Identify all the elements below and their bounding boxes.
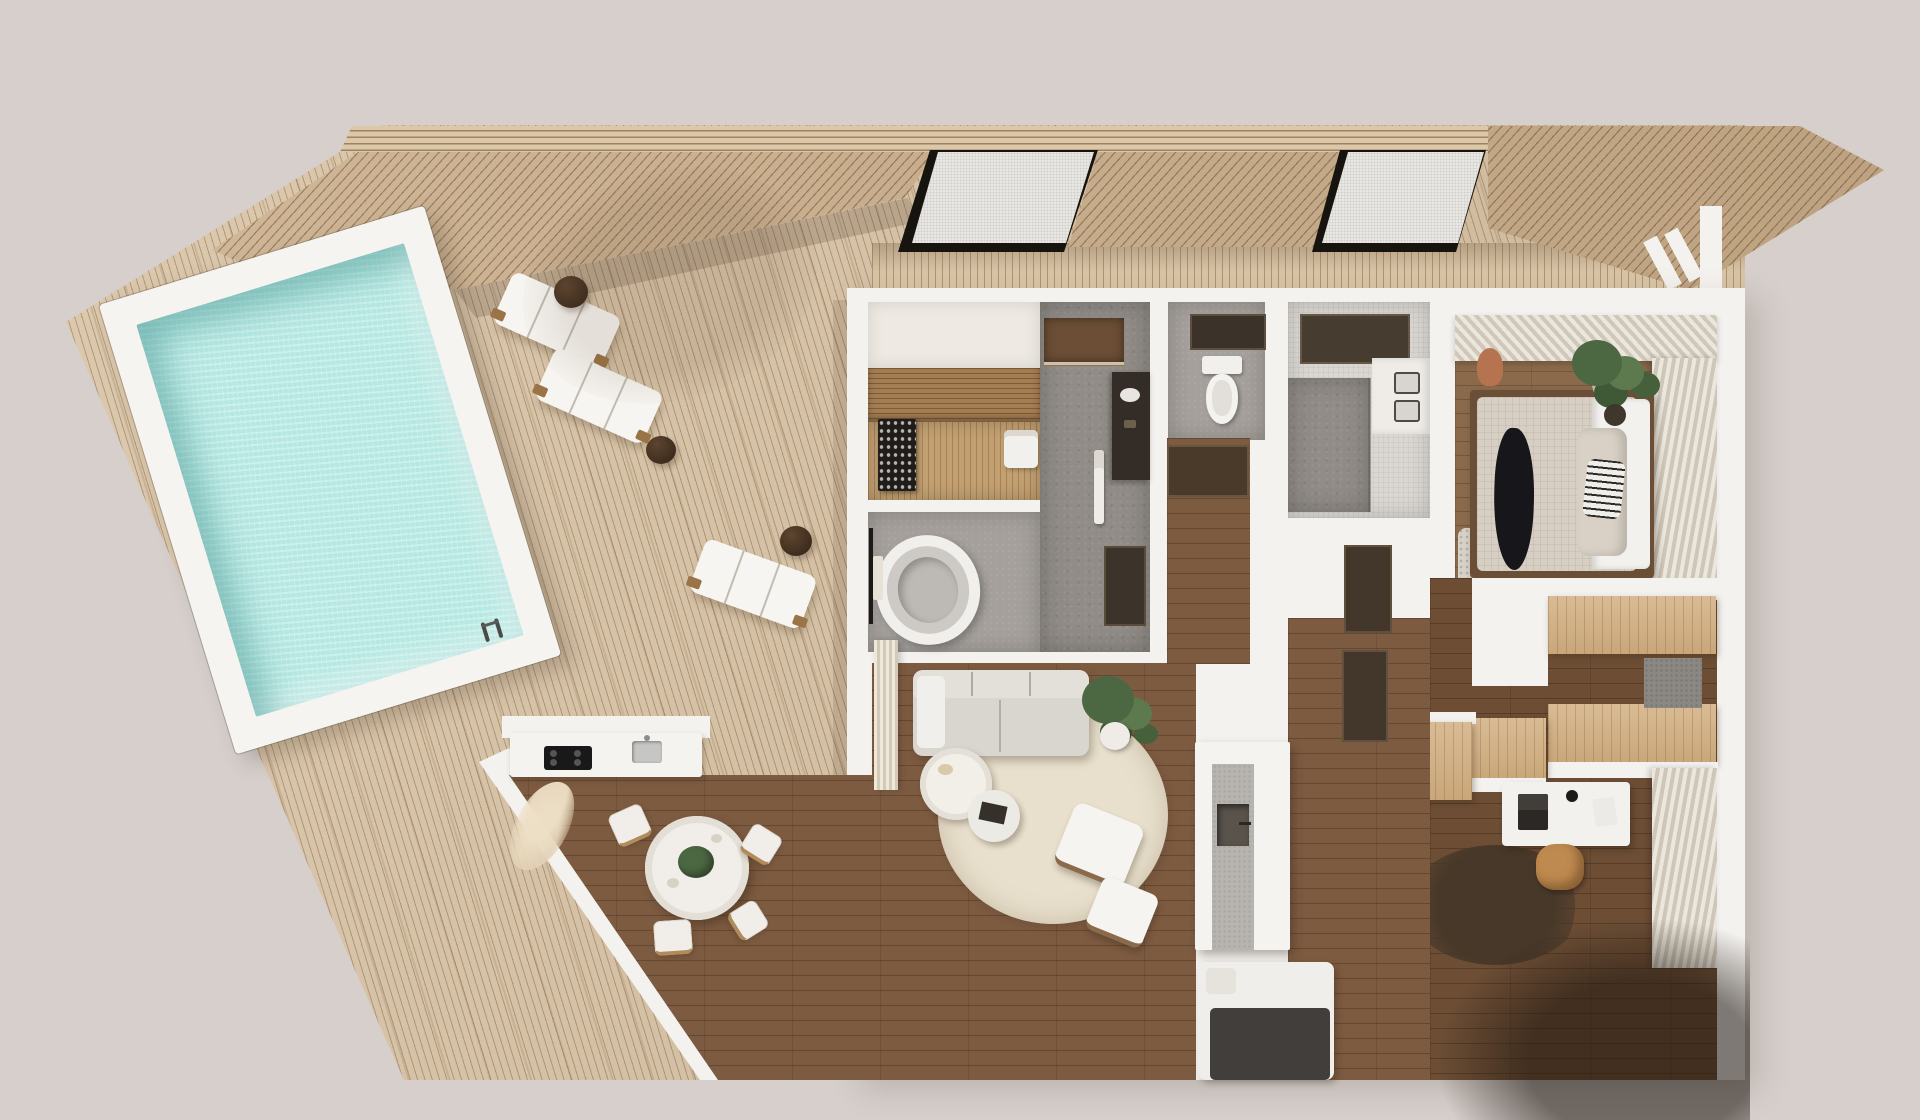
toilet-bowl xyxy=(1206,374,1238,424)
sofa xyxy=(913,670,1089,756)
walk-in-shower xyxy=(1044,318,1124,366)
dining-chair-3 xyxy=(653,919,693,957)
hall-roof-window xyxy=(1167,445,1249,497)
kitchen-sink xyxy=(632,741,662,763)
wardrobe-a xyxy=(1548,596,1716,654)
sauna-heater xyxy=(878,419,916,491)
faucet xyxy=(644,735,650,741)
living-curtain-left xyxy=(874,640,898,790)
cooktop xyxy=(544,746,592,770)
bedside-pot xyxy=(1604,404,1626,426)
sauna-upper-bench xyxy=(868,368,1040,422)
rack-towel xyxy=(873,556,883,600)
dining-table xyxy=(645,816,749,920)
floor-plan-render xyxy=(0,0,1920,1080)
laptop xyxy=(1518,794,1548,830)
sauna-towel xyxy=(1004,430,1038,468)
closet-gray-panel xyxy=(1644,658,1702,708)
master-shower-floor xyxy=(1288,378,1370,512)
double-vanity xyxy=(1372,358,1430,434)
side-table-2 xyxy=(646,436,676,464)
hall-window-panel-2 xyxy=(1342,650,1388,742)
office-chair xyxy=(1536,844,1584,890)
bedroom-curtain-right xyxy=(1652,358,1717,578)
living-plant xyxy=(1082,676,1134,724)
sauna-entry-floor xyxy=(868,302,1040,368)
toilet-roof-window xyxy=(1190,314,1266,350)
coffee-table-small xyxy=(968,790,1020,842)
wardrobe-b xyxy=(1548,704,1716,764)
bedroom-plant xyxy=(1572,340,1622,386)
hall-door-dark xyxy=(1104,546,1146,626)
toilet-tank xyxy=(1202,356,1242,374)
hanging-towels xyxy=(1094,450,1104,524)
table-plant xyxy=(678,846,714,878)
dark-vanity xyxy=(1112,372,1150,480)
fireplace-panel xyxy=(1212,764,1254,950)
office-desk xyxy=(1502,782,1630,846)
striped-pillow xyxy=(1582,458,1626,520)
bottom-bed xyxy=(1198,962,1334,1080)
master-shower-glass xyxy=(1368,378,1371,512)
kitchen-counter xyxy=(510,733,702,777)
fireplace-inset xyxy=(1217,804,1249,846)
se-corner-shadow xyxy=(1440,920,1750,1120)
fireplace-column xyxy=(1195,742,1290,950)
bottom-bed-pillow xyxy=(1206,968,1236,994)
magazine xyxy=(978,801,1007,824)
shower-glass xyxy=(1044,362,1124,365)
closet-frame-left xyxy=(1472,598,1548,686)
terracotta-vase xyxy=(1477,348,1503,386)
wall-shadow-on-deck xyxy=(833,300,847,778)
bottom-bed-blanket xyxy=(1210,1008,1330,1080)
desk-paper xyxy=(1592,797,1618,828)
side-table-3 xyxy=(780,526,812,556)
desk-lamp xyxy=(1566,790,1578,802)
living-plant-pot xyxy=(1100,722,1130,750)
sofa-throw xyxy=(917,676,945,748)
hall-window-panel-1 xyxy=(1344,545,1392,633)
master-bath-roof-window xyxy=(1300,314,1410,364)
wall-fin-3 xyxy=(1700,206,1722,290)
